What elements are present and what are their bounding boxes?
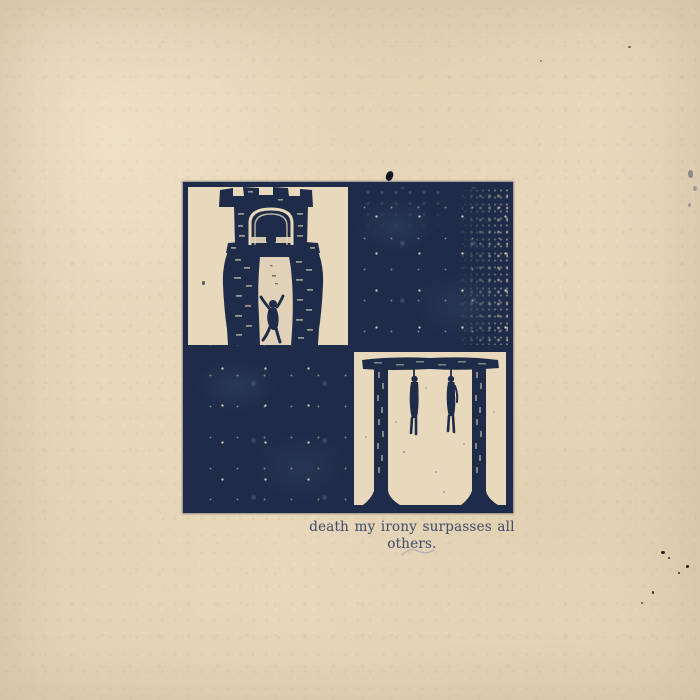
panel-tower xyxy=(188,187,348,345)
ink-speck xyxy=(202,281,205,285)
hanged-figure-2 xyxy=(447,367,458,432)
ink-speck xyxy=(628,46,631,48)
ink-speck xyxy=(668,557,670,559)
ink-speckle-texture xyxy=(188,345,348,508)
tower-crenellations xyxy=(219,187,313,207)
panel-bottom-left xyxy=(188,345,348,508)
gallows-illustration xyxy=(354,352,506,505)
artwork-grid xyxy=(188,187,508,508)
ink-blob xyxy=(385,170,394,181)
paper-background: death my irony surpasses all others. xyxy=(0,0,700,700)
ink-smudge xyxy=(688,203,691,207)
ink-speck xyxy=(641,602,643,604)
ink-scuff-texture xyxy=(361,187,449,233)
pencil-squiggle xyxy=(398,543,438,559)
gallows-left-post xyxy=(374,366,388,486)
ink-speck xyxy=(686,565,689,568)
gallows-right-post xyxy=(472,366,486,486)
ink-speck xyxy=(652,591,654,594)
ink-speckle-texture xyxy=(348,187,508,345)
ink-smudge xyxy=(693,186,697,191)
album-artwork xyxy=(183,182,513,513)
panel-gallows xyxy=(348,345,508,508)
ink-smudge xyxy=(688,170,693,178)
ink-speck xyxy=(661,551,665,554)
panel-top-right xyxy=(348,187,508,345)
ink-wear-texture xyxy=(456,187,508,345)
gallows-panel xyxy=(354,352,506,505)
ink-speck xyxy=(678,572,680,574)
ink-speck xyxy=(540,60,542,62)
tower-illustration xyxy=(188,187,348,345)
hanged-figure-1 xyxy=(410,367,419,434)
gallows-texture xyxy=(374,361,486,473)
